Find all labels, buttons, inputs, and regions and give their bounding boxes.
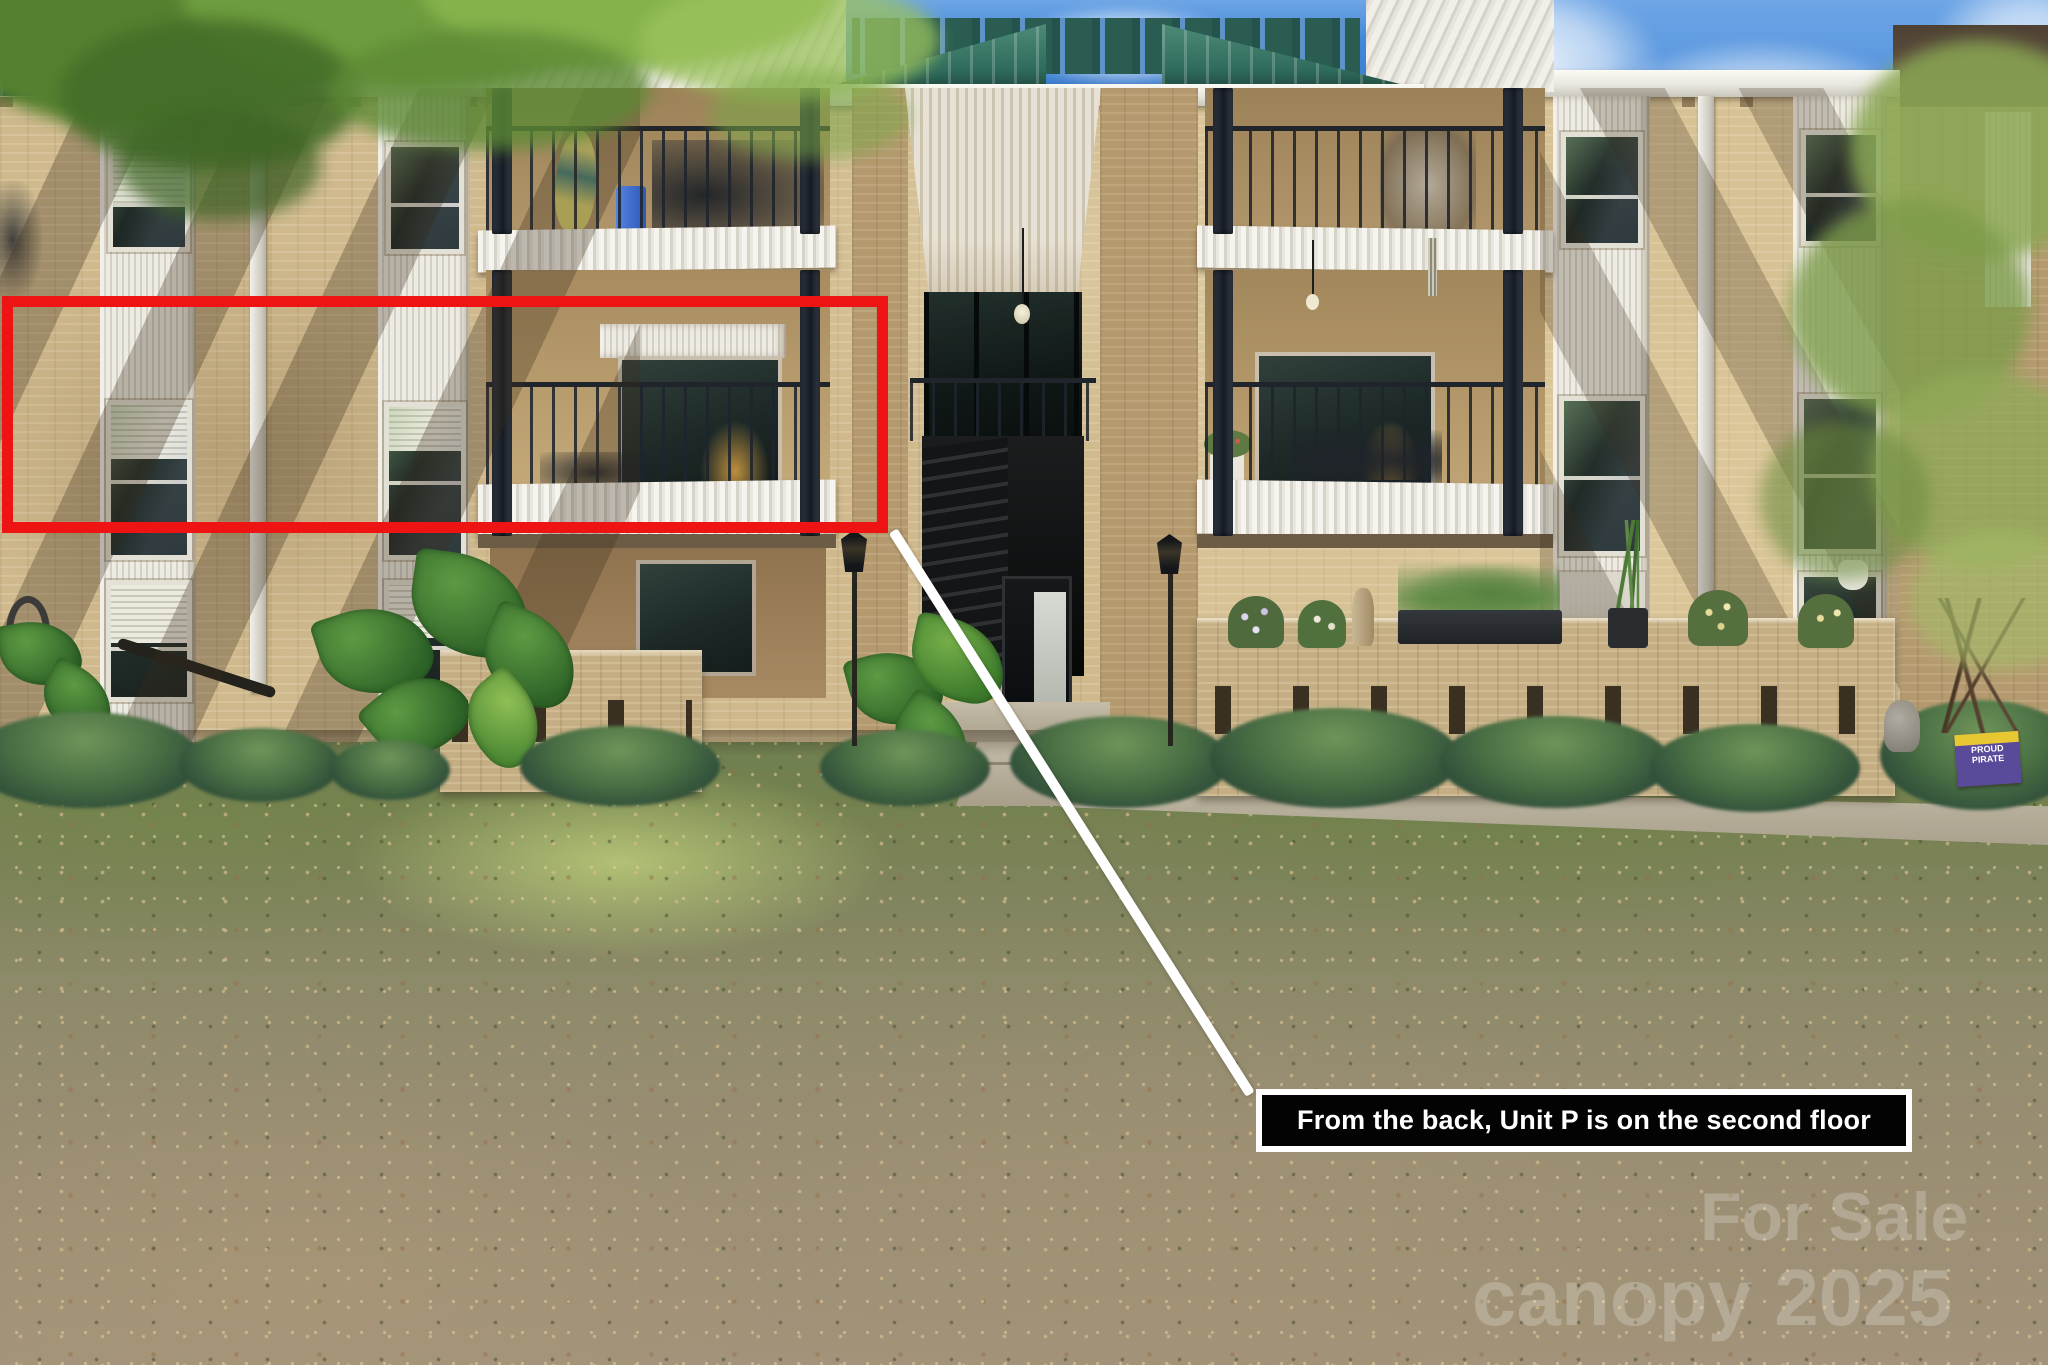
potted-mum-purple (1228, 596, 1284, 648)
planter-box (1398, 610, 1562, 644)
yard-sign-text: PROUD PIRATE (1955, 742, 2020, 766)
yard-sign: PROUD PIRATE (1954, 731, 2021, 787)
grass-clump (1210, 708, 1460, 808)
balcony-railing-3f (1205, 126, 1545, 237)
iron-scroll-column (1503, 88, 1523, 234)
grass-clump (1650, 724, 1860, 812)
grass-clump (180, 728, 340, 802)
unit-highlight-box (2, 296, 888, 533)
balcony-railing-2f (1205, 382, 1545, 489)
watermark-line1: For Sale (1700, 1178, 1968, 1256)
garden-jug (1352, 588, 1374, 646)
hanging-bulb (1306, 294, 1319, 310)
pendant-light-bulb (1014, 304, 1030, 324)
planter-box-plants (1398, 560, 1560, 616)
tree-canopy-right (1730, 40, 2048, 660)
wind-chime (1428, 238, 1437, 296)
potted-mum-white (1298, 600, 1346, 648)
iron-scroll-column (1503, 270, 1523, 536)
snake-plant-pot (1608, 608, 1648, 648)
watermark-line2: canopy 2025 (1472, 1252, 1952, 1344)
lamp-post (852, 570, 857, 746)
hanging-bulb-cord (1312, 240, 1314, 296)
tree-canopy-left (0, 0, 980, 260)
grass-clump (520, 726, 720, 806)
balcony-underside (1197, 534, 1553, 548)
iron-scroll-column (1213, 270, 1233, 536)
entrance-pier-right (1100, 88, 1198, 744)
stair-landing-railing (910, 378, 1096, 441)
caption-text: From the back, Unit P is on the second f… (1297, 1105, 1871, 1136)
photo-scene: PROUD PIRATE From the back, Unit P is on… (0, 0, 2048, 1365)
grass-clump (330, 740, 450, 800)
balcony-fascia-3f (1197, 226, 1553, 273)
iron-scroll-column (1213, 88, 1233, 234)
entry-door-glass-panel (1034, 592, 1066, 708)
balcony-fascia-2f (1197, 480, 1553, 539)
pendant-light-cord (1022, 228, 1024, 308)
elephant-statue (1884, 700, 1920, 752)
grass-clump (820, 730, 990, 806)
snake-plant (1598, 520, 1660, 616)
lamp-post (1168, 572, 1173, 746)
grass-clump (1440, 716, 1670, 808)
caption-label: From the back, Unit P is on the second f… (1256, 1089, 1912, 1152)
